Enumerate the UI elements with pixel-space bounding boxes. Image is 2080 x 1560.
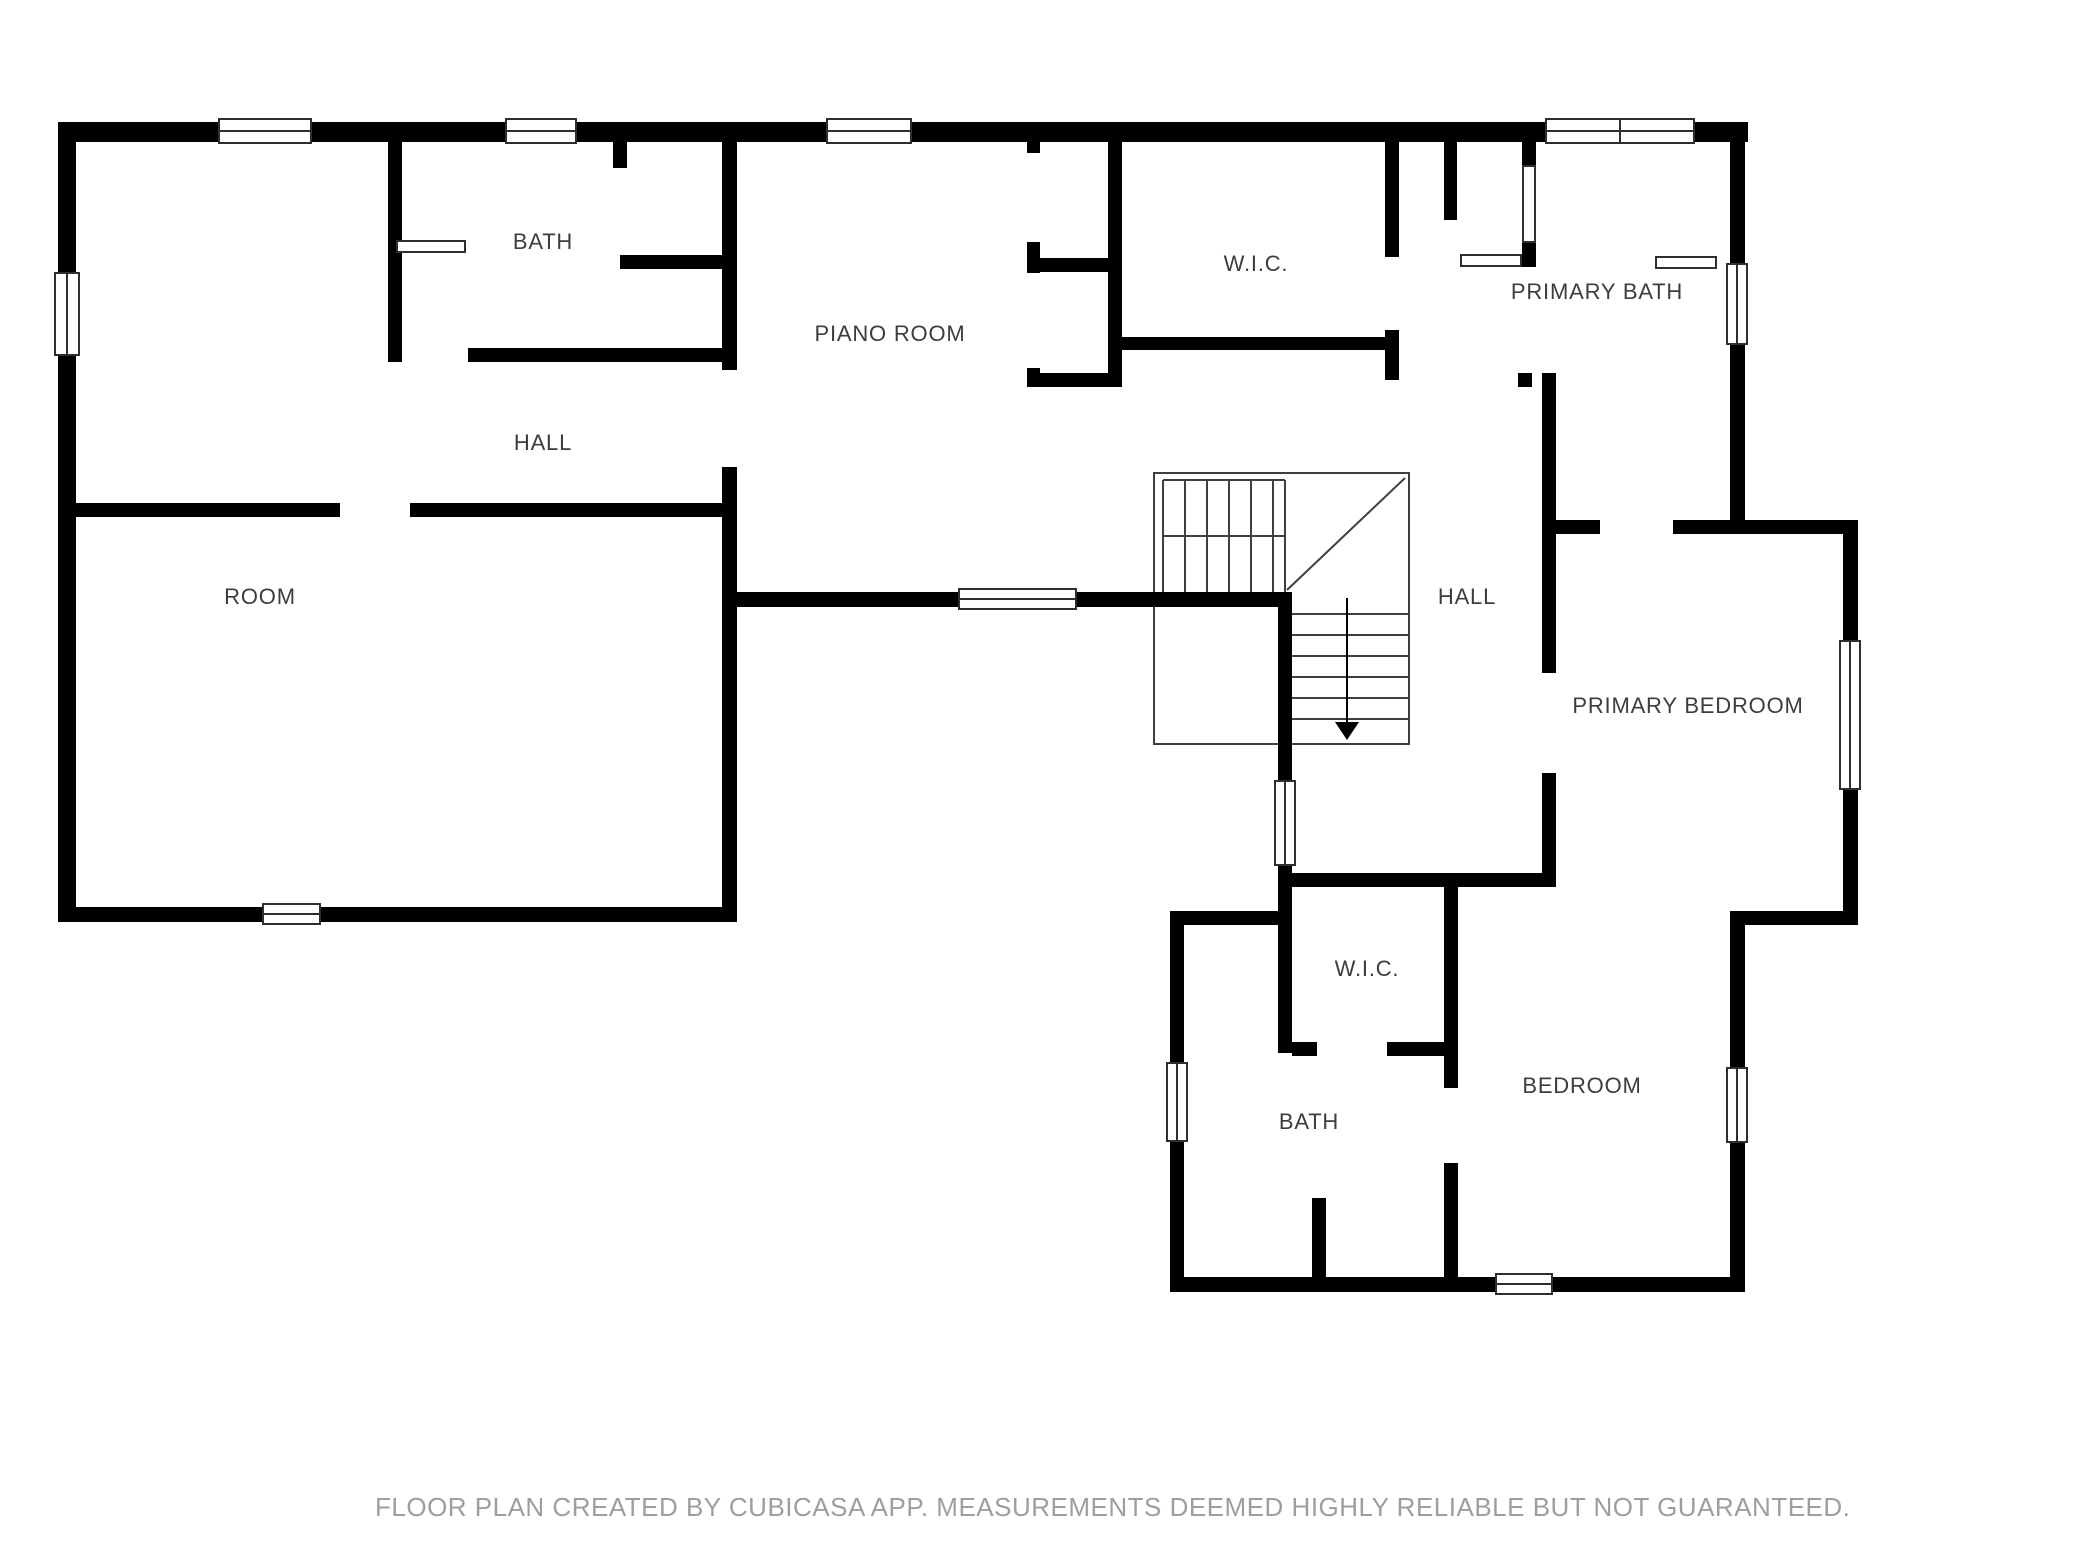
window — [1495, 1273, 1553, 1295]
door-opening-bath-lower — [1444, 1088, 1458, 1163]
wall-exterior-left — [58, 122, 76, 922]
wall-bath-lower-top — [1170, 911, 1292, 925]
window — [505, 118, 577, 144]
counter-fixture — [1460, 254, 1522, 267]
wall-right-jog — [1730, 911, 1858, 925]
opening-closet-lower — [1027, 273, 1040, 368]
opening-closet-upper — [1027, 153, 1040, 242]
window — [262, 903, 321, 925]
footer-disclaimer: FLOOR PLAN CREATED BY CUBICASA APP. MEAS… — [375, 1492, 1655, 1523]
wall-bath-upper-partition — [620, 255, 722, 269]
room-label-wic-lower: W.I.C. — [1335, 956, 1400, 982]
wall-bath-upper-stub — [613, 140, 627, 168]
wall-wic-lower-bottom-right — [1387, 1042, 1444, 1056]
window — [1726, 1067, 1748, 1143]
window — [1619, 118, 1695, 144]
wall-entry-stub-top — [1522, 142, 1536, 165]
wall-closet-bottom — [1027, 373, 1122, 387]
wall-hall-bedroom-divider — [1542, 373, 1556, 887]
wall-hanging-stub — [1444, 142, 1457, 220]
shelf-fixture — [396, 240, 466, 253]
window — [1726, 263, 1748, 345]
room-label-primary-bedroom: PRIMARY BEDROOM — [1572, 693, 1803, 719]
counter-fixture — [1655, 256, 1717, 269]
room-label-primary-bath: PRIMARY BATH — [1511, 279, 1683, 305]
room-label-piano-room: PIANO ROOM — [814, 321, 965, 347]
door-opening-bath-upper — [402, 348, 468, 362]
room-label-bedroom: BEDROOM — [1522, 1073, 1641, 1099]
door-opening-wic-upper — [1385, 257, 1399, 330]
window — [1166, 1062, 1188, 1142]
window — [958, 588, 1077, 610]
room-label-hall-stairs: HALL — [1438, 584, 1496, 610]
window — [1545, 118, 1621, 144]
window — [54, 272, 80, 356]
door-opening-primary-bedroom — [1542, 673, 1556, 773]
wall-wic-lower-right — [1444, 873, 1458, 1292]
wall-entry-stub-bottom — [1522, 243, 1536, 267]
wall-entry-foot — [1518, 373, 1532, 387]
window — [826, 118, 912, 144]
room-label-hall-left: HALL — [514, 430, 572, 456]
window — [1839, 640, 1861, 790]
wall-room-bottom — [58, 907, 737, 922]
room-label-room: ROOM — [224, 584, 296, 610]
wall-wic-upper-left — [1108, 140, 1122, 387]
wall-bath-lower-stub — [1312, 1198, 1326, 1277]
door-leaf — [1522, 165, 1536, 243]
wall-wic-upper-bottom — [1122, 337, 1385, 350]
opening-hall-piano — [722, 370, 737, 467]
wall-wic-lower-top — [1292, 873, 1556, 887]
room-label-bath-upper: BATH — [513, 229, 573, 255]
door-opening-room — [340, 503, 410, 517]
door-opening-primary-bath — [1600, 520, 1673, 534]
floor-plan-canvas: BATH PIANO ROOM W.I.C. PRIMARY BATH HALL… — [0, 0, 2080, 1560]
window — [1274, 780, 1296, 866]
room-label-bath-lower: BATH — [1279, 1109, 1339, 1135]
wall-main-vertical — [722, 122, 737, 922]
window — [218, 118, 312, 144]
room-label-wic-upper: W.I.C. — [1224, 251, 1289, 277]
wall-wic-lower-bottom-left — [1292, 1042, 1317, 1056]
wall-closet-divider — [1040, 258, 1110, 272]
